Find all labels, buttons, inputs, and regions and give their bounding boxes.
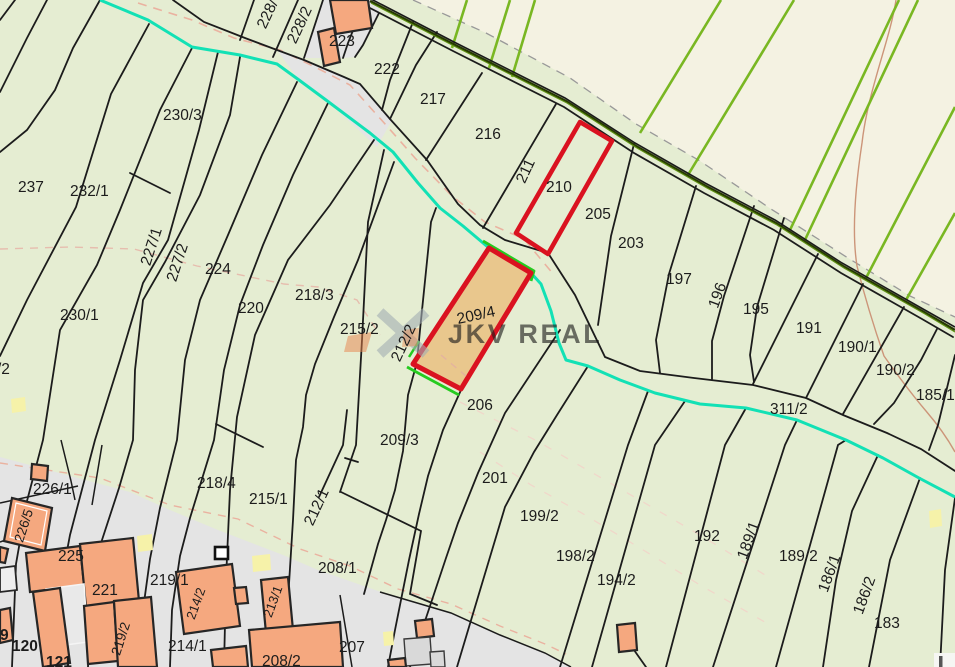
svg-text:208/1: 208/1 — [318, 560, 357, 577]
svg-text:209/3: 209/3 — [380, 432, 419, 449]
svg-text:218/3: 218/3 — [295, 287, 334, 304]
svg-text:206: 206 — [467, 397, 493, 414]
svg-text:218/4: 218/4 — [197, 475, 236, 492]
svg-text:222: 222 — [374, 61, 400, 78]
svg-text:192: 192 — [694, 528, 720, 545]
svg-text:217: 217 — [420, 91, 446, 108]
svg-text:210: 210 — [546, 179, 572, 196]
svg-text:203: 203 — [618, 235, 644, 252]
svg-text:215/1: 215/1 — [249, 491, 288, 508]
svg-text:214/1: 214/1 — [168, 638, 207, 655]
svg-text:225: 225 — [58, 548, 84, 565]
svg-text:190/2: 190/2 — [876, 362, 915, 379]
svg-text:221: 221 — [92, 582, 118, 599]
svg-text:199/2: 199/2 — [520, 508, 559, 525]
svg-text:207: 207 — [339, 639, 365, 656]
svg-text:197: 197 — [666, 271, 692, 288]
svg-text:208/2: 208/2 — [262, 653, 301, 667]
svg-text:219/1: 219/1 — [150, 572, 189, 589]
svg-text:/2: /2 — [0, 361, 10, 378]
svg-text:185/1: 185/1 — [916, 387, 955, 404]
svg-text:198/2: 198/2 — [556, 548, 595, 565]
svg-text:237: 237 — [18, 179, 44, 196]
svg-text:220: 220 — [238, 300, 264, 317]
svg-text:195: 195 — [743, 301, 769, 318]
svg-text:194/2: 194/2 — [597, 572, 636, 589]
svg-text:121: 121 — [46, 654, 72, 667]
svg-text:232/1: 232/1 — [70, 183, 109, 200]
svg-text:226/1: 226/1 — [33, 481, 72, 498]
svg-text:216: 216 — [475, 126, 501, 143]
svg-text:9: 9 — [0, 627, 9, 644]
svg-text:190/1: 190/1 — [838, 339, 877, 356]
svg-text:215/2: 215/2 — [340, 321, 379, 338]
svg-text:191: 191 — [796, 320, 822, 337]
svg-text:205: 205 — [585, 206, 611, 223]
svg-text:230/3: 230/3 — [163, 107, 202, 124]
svg-text:224: 224 — [205, 261, 231, 278]
svg-text:189/2: 189/2 — [779, 548, 818, 565]
svg-text:201: 201 — [482, 470, 508, 487]
svg-text:230/1: 230/1 — [60, 307, 99, 324]
svg-text:311/2: 311/2 — [770, 401, 808, 418]
svg-text:183: 183 — [874, 615, 900, 632]
svg-text:120: 120 — [12, 638, 38, 655]
svg-text:223: 223 — [329, 33, 355, 50]
